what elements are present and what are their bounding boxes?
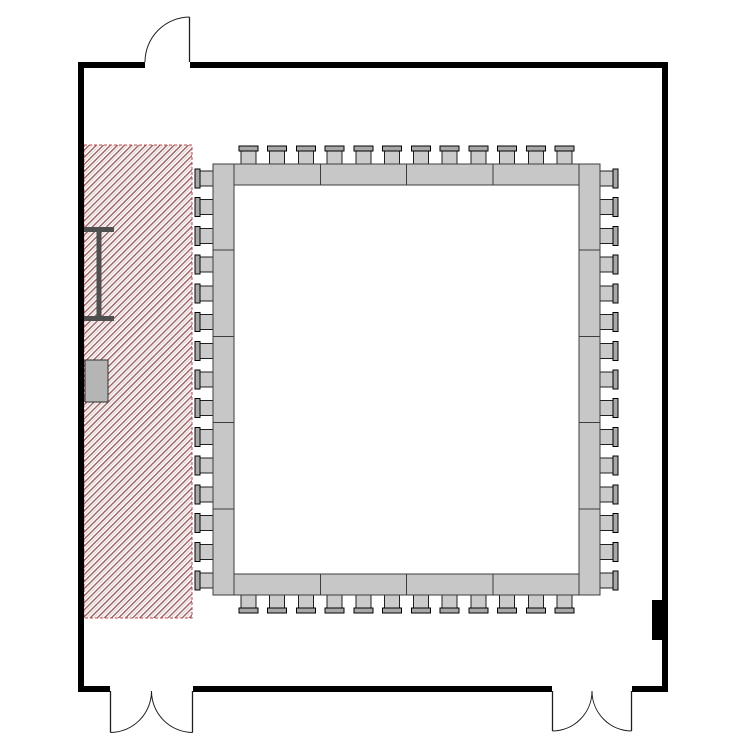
chair-back — [411, 146, 430, 151]
chair-back — [613, 514, 618, 533]
door-swing-arc — [152, 691, 193, 733]
chair[interactable] — [325, 146, 344, 164]
chair-seat — [200, 228, 213, 243]
chair-seat — [442, 151, 457, 164]
bottom-left-double-door[interactable] — [110, 686, 193, 733]
chair-back — [613, 571, 618, 590]
chair-back — [613, 169, 618, 188]
chair-back — [195, 255, 200, 274]
chair-back — [411, 608, 430, 613]
table-segment[interactable] — [579, 336, 600, 422]
chair-seat — [298, 151, 313, 164]
chair[interactable] — [600, 284, 618, 303]
chair-seat — [600, 171, 613, 186]
chair-back — [195, 485, 200, 504]
chair-seat — [471, 595, 486, 608]
chair-seat — [600, 228, 613, 243]
chair-back — [195, 370, 200, 389]
chair-back — [195, 571, 200, 590]
chair-back — [195, 284, 200, 303]
chair[interactable] — [600, 198, 618, 217]
table-segment[interactable] — [579, 250, 600, 336]
chair-seat — [200, 544, 213, 559]
chair[interactable] — [195, 399, 213, 418]
chair-seat — [200, 343, 213, 358]
chair-back — [613, 226, 618, 245]
chair[interactable] — [195, 255, 213, 274]
chair-back — [268, 608, 287, 613]
chair-seat — [200, 487, 213, 502]
chair-seat — [200, 286, 213, 301]
chair-back — [613, 427, 618, 446]
chair[interactable] — [383, 146, 402, 164]
chair[interactable] — [600, 571, 618, 590]
chair-back — [239, 146, 258, 151]
chair-back — [613, 542, 618, 561]
wall-right — [662, 62, 668, 692]
chair[interactable] — [526, 595, 545, 613]
chair-seat — [413, 595, 428, 608]
top-entry-door[interactable] — [145, 17, 190, 69]
chair-back — [498, 608, 517, 613]
chair[interactable] — [498, 146, 517, 164]
chair[interactable] — [195, 370, 213, 389]
chair-seat — [600, 458, 613, 473]
chair-back — [354, 146, 373, 151]
chair-back — [296, 608, 315, 613]
chair[interactable] — [600, 485, 618, 504]
chair-seat — [200, 429, 213, 444]
chair[interactable] — [268, 595, 287, 613]
chair[interactable] — [195, 198, 213, 217]
chairs — [195, 146, 618, 613]
chair-seat — [600, 401, 613, 416]
chair-back — [354, 608, 373, 613]
chair-seat — [241, 595, 256, 608]
chair-back — [526, 146, 545, 151]
chair-back — [296, 146, 315, 151]
chair[interactable] — [600, 255, 618, 274]
chair-seat — [200, 458, 213, 473]
chair[interactable] — [600, 313, 618, 332]
chair-back — [613, 399, 618, 418]
chair-seat — [200, 372, 213, 387]
table-segment[interactable] — [234, 164, 320, 185]
chair-back — [469, 146, 488, 151]
chair-seat — [600, 343, 613, 358]
chair-back — [195, 542, 200, 561]
chair-seat — [200, 257, 213, 272]
chair-seat — [356, 151, 371, 164]
chair[interactable] — [195, 427, 213, 446]
chair-seat — [600, 516, 613, 531]
chair-seat — [200, 171, 213, 186]
chair[interactable] — [411, 595, 430, 613]
chair[interactable] — [469, 146, 488, 164]
chair-seat — [600, 257, 613, 272]
chair[interactable] — [354, 595, 373, 613]
chair-back — [526, 608, 545, 613]
chair[interactable] — [296, 595, 315, 613]
chair-seat — [600, 286, 613, 301]
table-segment[interactable] — [320, 574, 406, 595]
chair[interactable] — [555, 146, 574, 164]
chair-seat — [528, 595, 543, 608]
chair[interactable] — [600, 427, 618, 446]
door-swing-arc — [111, 691, 152, 733]
chair-back — [195, 456, 200, 475]
chair[interactable] — [555, 595, 574, 613]
chair[interactable] — [325, 595, 344, 613]
chair[interactable] — [600, 370, 618, 389]
chair-seat — [356, 595, 371, 608]
chair-back — [613, 370, 618, 389]
table-segment[interactable] — [320, 164, 406, 185]
chair-back — [268, 146, 287, 151]
chair[interactable] — [600, 341, 618, 360]
chair[interactable] — [383, 595, 402, 613]
chair[interactable] — [239, 595, 258, 613]
chair-seat — [200, 200, 213, 215]
chair-seat — [600, 544, 613, 559]
chair[interactable] — [600, 456, 618, 475]
chair[interactable] — [268, 146, 287, 164]
chair[interactable] — [195, 226, 213, 245]
chair[interactable] — [195, 456, 213, 475]
chair-seat — [557, 595, 572, 608]
chair-back — [195, 198, 200, 217]
chair-seat — [442, 595, 457, 608]
podium[interactable] — [85, 360, 108, 402]
chair[interactable] — [440, 146, 459, 164]
chair-seat — [200, 401, 213, 416]
chair-seat — [200, 516, 213, 531]
chair[interactable] — [195, 542, 213, 561]
chair-back — [195, 341, 200, 360]
chair-seat — [600, 315, 613, 330]
floor-plan — [0, 0, 750, 750]
chair-seat — [200, 573, 213, 588]
chair-back — [195, 399, 200, 418]
chair[interactable] — [296, 146, 315, 164]
chair-back — [555, 608, 574, 613]
chair-back — [440, 146, 459, 151]
bottom-right-double-door[interactable] — [552, 686, 632, 732]
chair-back — [195, 169, 200, 188]
table-segment[interactable] — [213, 164, 234, 250]
chair-back — [469, 608, 488, 613]
chair-back — [325, 608, 344, 613]
table-segment[interactable] — [213, 250, 234, 336]
wall-panel[interactable] — [652, 600, 665, 640]
chair-seat — [471, 151, 486, 164]
table-segment[interactable] — [407, 164, 493, 185]
chair-back — [383, 608, 402, 613]
door-swing-arc — [592, 691, 632, 731]
chair-seat — [600, 372, 613, 387]
chair[interactable] — [600, 542, 618, 561]
chair-seat — [500, 151, 515, 164]
table-segment[interactable] — [407, 574, 493, 595]
chair[interactable] — [195, 514, 213, 533]
chair-back — [613, 198, 618, 217]
chair[interactable] — [600, 226, 618, 245]
chair[interactable] — [469, 595, 488, 613]
table-segment[interactable] — [493, 574, 579, 595]
chair-seat — [298, 595, 313, 608]
chair-seat — [413, 151, 428, 164]
chair-seat — [270, 595, 285, 608]
chair-back — [195, 313, 200, 332]
chair-seat — [600, 429, 613, 444]
table-segment[interactable] — [234, 574, 320, 595]
chair-back — [498, 146, 517, 151]
chair-back — [613, 284, 618, 303]
wall-left — [78, 62, 84, 692]
chair-seat — [600, 573, 613, 588]
chair-seat — [557, 151, 572, 164]
table-segment[interactable] — [213, 336, 234, 422]
conference-table — [213, 164, 600, 595]
chair[interactable] — [195, 485, 213, 504]
chair[interactable] — [354, 146, 373, 164]
chair[interactable] — [600, 399, 618, 418]
chair[interactable] — [600, 514, 618, 533]
chair-back — [195, 514, 200, 533]
chair-back — [195, 226, 200, 245]
chair-back — [239, 608, 258, 613]
chair-back — [325, 146, 344, 151]
table-segment[interactable] — [579, 164, 600, 250]
chair-back — [613, 341, 618, 360]
chair-back — [440, 608, 459, 613]
chair-back — [613, 456, 618, 475]
chair-seat — [385, 151, 400, 164]
chair-seat — [600, 487, 613, 502]
chair-back — [383, 146, 402, 151]
chair[interactable] — [195, 284, 213, 303]
chair[interactable] — [440, 595, 459, 613]
chair-seat — [327, 151, 342, 164]
chair-seat — [600, 200, 613, 215]
chair-seat — [500, 595, 515, 608]
table-segment[interactable] — [213, 423, 234, 509]
chair[interactable] — [498, 595, 517, 613]
chair-back — [613, 485, 618, 504]
chair[interactable] — [195, 341, 213, 360]
chair[interactable] — [195, 313, 213, 332]
chair-seat — [270, 151, 285, 164]
door-swing-arc — [553, 691, 593, 731]
chair[interactable] — [526, 146, 545, 164]
chair-seat — [385, 595, 400, 608]
table-segment[interactable] — [579, 509, 600, 595]
table-segment[interactable] — [213, 509, 234, 595]
chair-seat — [241, 151, 256, 164]
chair-back — [555, 146, 574, 151]
chair[interactable] — [195, 169, 213, 188]
chair[interactable] — [411, 146, 430, 164]
chair-back — [195, 427, 200, 446]
table-segment[interactable] — [493, 164, 579, 185]
door-opening — [145, 62, 190, 69]
chair[interactable] — [600, 169, 618, 188]
chair[interactable] — [195, 571, 213, 590]
chair-back — [613, 313, 618, 332]
chair-seat — [528, 151, 543, 164]
floor-plan-canvas — [0, 0, 750, 750]
door-swing-arc — [145, 17, 190, 62]
chair-seat — [327, 595, 342, 608]
chair[interactable] — [239, 146, 258, 164]
chair-back — [613, 255, 618, 274]
table-segment[interactable] — [579, 423, 600, 509]
chair-seat — [200, 315, 213, 330]
